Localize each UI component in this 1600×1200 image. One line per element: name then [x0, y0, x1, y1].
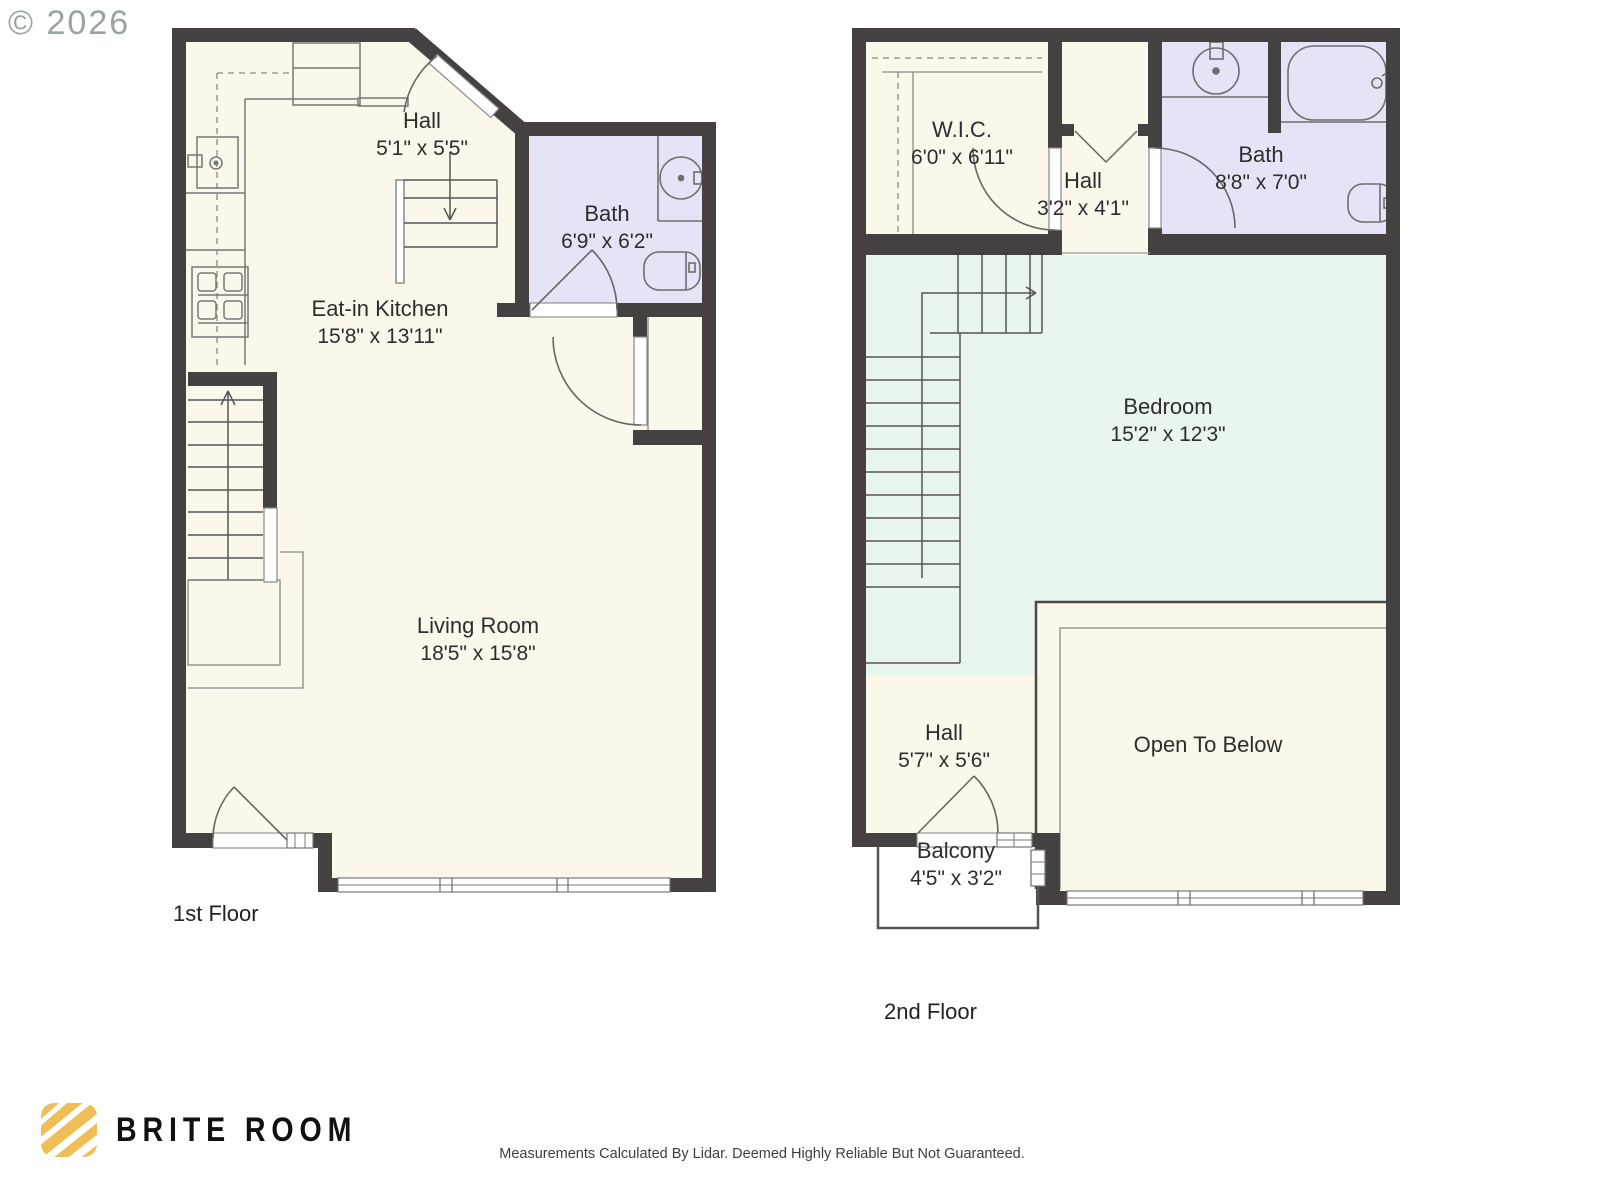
- room-label-bedroom-2f: Bedroom 15'2" x 12'3": [1110, 392, 1225, 449]
- disclaimer-text: Measurements Calculated By Lidar. Deemed…: [499, 1146, 1025, 1162]
- floorplan-drawing: [0, 0, 1600, 1200]
- room-label-bath-2f: Bath 8'8" x 7'0": [1215, 140, 1307, 197]
- room-label-kitchen-1f: Eat-in Kitchen 15'8" x 13'11": [312, 294, 449, 351]
- floor-label-1st: 1st Floor: [173, 901, 259, 927]
- room-label-hall-2f: Hall 5'7" x 5'6": [898, 718, 990, 775]
- room-label-wic-2f: W.I.C. 6'0" x 6'11": [911, 115, 1013, 172]
- brand-logo: BRITE ROOM: [40, 1102, 403, 1158]
- room-label-open-to-below: Open To Below: [1134, 730, 1283, 759]
- brand-logo-text: BRITE ROOM: [116, 1111, 357, 1150]
- room-label-balcony: Balcony 4'5" x 3'2": [910, 836, 1002, 893]
- room-label-living-room-1f: Living Room 18'5" x 15'8": [417, 611, 539, 668]
- room-label-hall-1f: Hall 5'1" x 5'5": [376, 106, 468, 163]
- room-label-hall-small-2f: Hall 3'2" x 4'1": [1037, 166, 1129, 223]
- floorplan-page: © 2026 Hall 5'1" x 5'5" Bath 6'9" x 6'2"…: [0, 0, 1600, 1200]
- floor-label-2nd: 2nd Floor: [884, 999, 977, 1025]
- copyright-watermark: © 2026: [8, 4, 130, 43]
- brite-room-logo-icon: [40, 1102, 98, 1158]
- room-label-bath-1f: Bath 6'9" x 6'2": [561, 199, 653, 256]
